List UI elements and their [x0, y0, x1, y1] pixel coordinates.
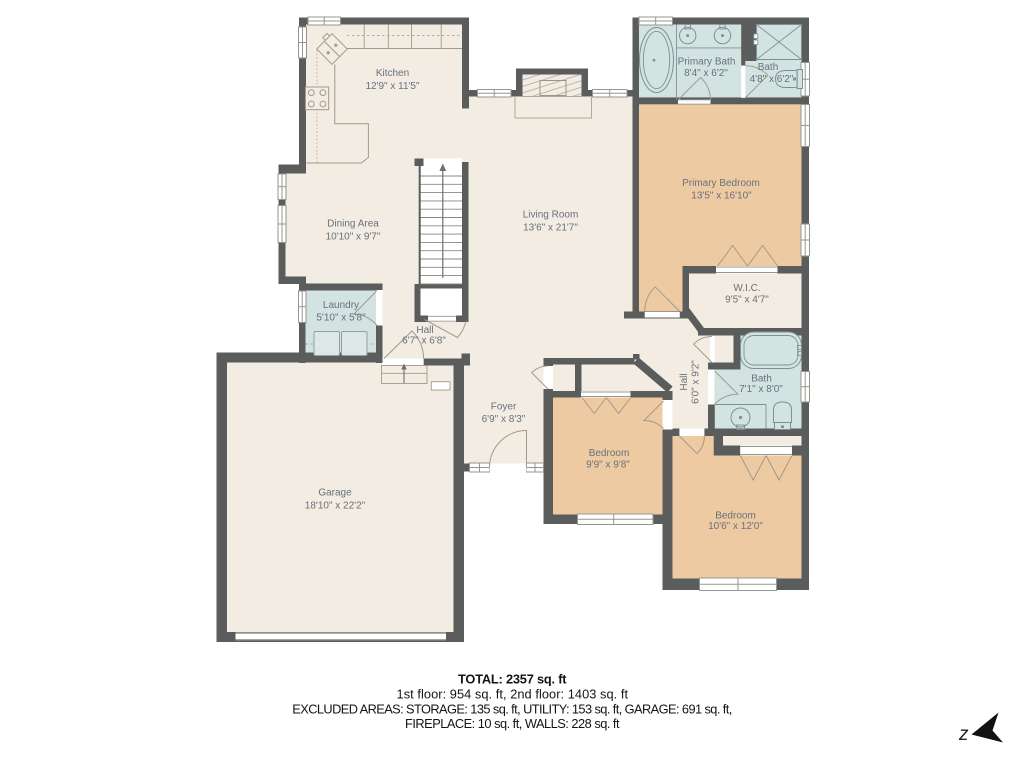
svg-text:9'9" x 9'8": 9'9" x 9'8" [586, 460, 630, 471]
svg-text:Foyer: Foyer [491, 402, 517, 413]
svg-text:13'6" x 21'7": 13'6" x 21'7" [523, 223, 578, 234]
svg-text:TOTAL: 2357 sq. ft: TOTAL: 2357 sq. ft [458, 672, 567, 687]
svg-text:8'4" x 6'2": 8'4" x 6'2" [684, 68, 728, 79]
svg-text:12'9" x 11'5": 12'9" x 11'5" [365, 81, 420, 92]
svg-text:18'10" x 22'2": 18'10" x 22'2" [305, 501, 366, 512]
svg-text:z: z [958, 724, 969, 745]
svg-text:Bath: Bath [758, 62, 779, 73]
svg-text:Primary Bath: Primary Bath [678, 57, 736, 68]
svg-text:1st floor: 954 sq. ft, 2nd flo: 1st floor: 954 sq. ft, 2nd floor: 1403 s… [397, 687, 629, 702]
svg-text:5'10" x 5'8": 5'10" x 5'8" [316, 313, 366, 324]
svg-text:10'10" x 9'7": 10'10" x 9'7" [326, 232, 381, 243]
svg-text:Kitchen: Kitchen [376, 68, 409, 79]
svg-text:Hall: Hall [679, 373, 690, 390]
svg-text:EXCLUDED AREAS: STORAGE: 135 s: EXCLUDED AREAS: STORAGE: 135 sq. ft, UTI… [292, 701, 732, 716]
svg-text:13'5" x 16'10": 13'5" x 16'10" [691, 191, 752, 202]
svg-text:6'7" x 6'8": 6'7" x 6'8" [402, 336, 446, 347]
svg-text:Garage: Garage [318, 488, 352, 499]
svg-text:6'9" x 8'3": 6'9" x 8'3" [482, 414, 526, 425]
svg-text:FIREPLACE: 10 sq. ft, WALLS: 2: FIREPLACE: 10 sq. ft, WALLS: 228 sq. ft [405, 716, 620, 731]
svg-text:Bedroom: Bedroom [715, 511, 756, 522]
svg-text:W.I.C.: W.I.C. [733, 283, 760, 294]
svg-text:Laundry: Laundry [323, 300, 359, 311]
svg-text:Primary Bedroom: Primary Bedroom [682, 178, 760, 189]
svg-text:6'0" x 9'2": 6'0" x 9'2" [691, 360, 702, 404]
svg-text:9'5" x 4'7": 9'5" x 4'7" [725, 295, 769, 306]
svg-text:Living Room: Living Room [523, 210, 579, 221]
svg-text:Bath: Bath [751, 374, 772, 385]
svg-text:Hall: Hall [416, 325, 433, 336]
svg-text:10'6" x 12'0": 10'6" x 12'0" [708, 521, 763, 532]
svg-text:Dining Area: Dining Area [327, 219, 379, 230]
svg-text:7'1" x 8'0": 7'1" x 8'0" [739, 384, 783, 395]
svg-text:Bedroom: Bedroom [589, 448, 630, 459]
svg-text:4'8" x 6'2": 4'8" x 6'2" [750, 74, 794, 85]
